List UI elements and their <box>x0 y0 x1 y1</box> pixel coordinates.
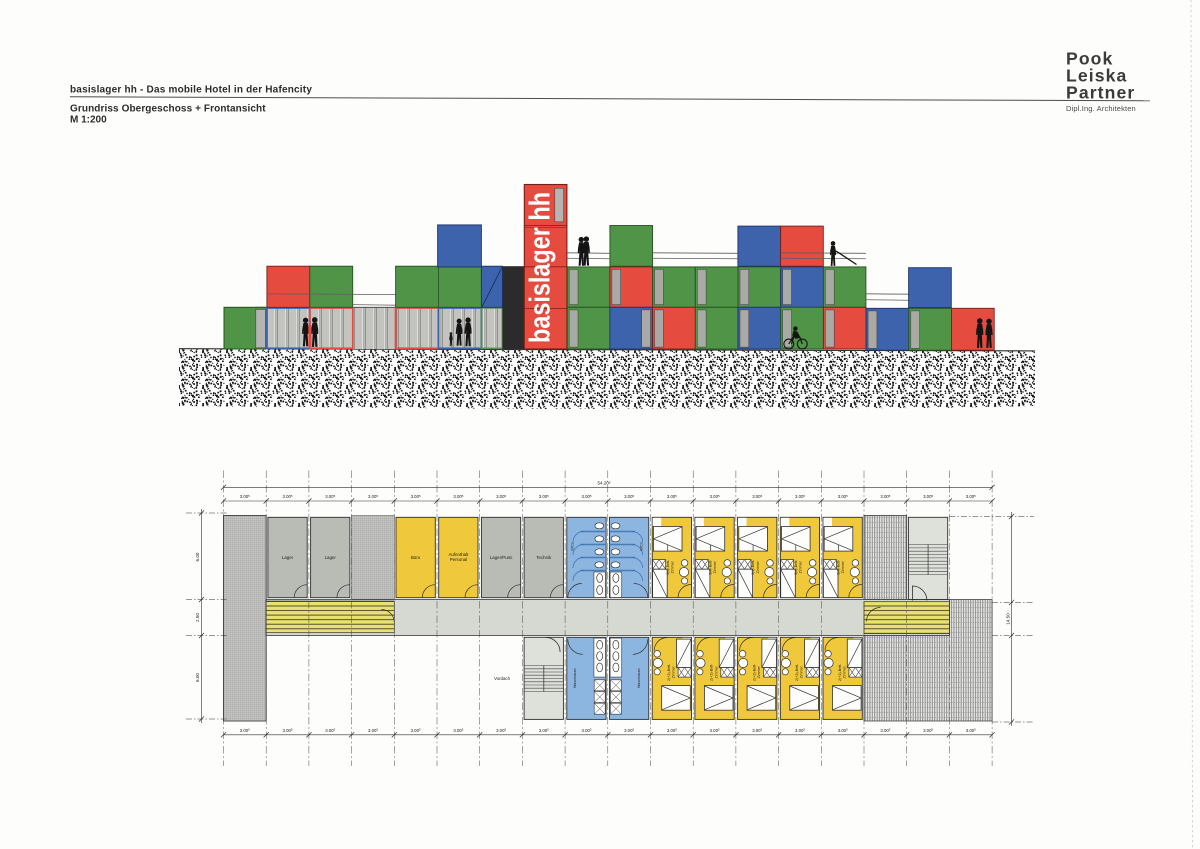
svg-text:3(4)-Bett-: 3(4)-Bett- <box>709 559 713 575</box>
svg-text:3(4)-Bett-: 3(4)-Bett- <box>794 559 798 575</box>
svg-text:WCs: WCs <box>569 542 574 551</box>
svg-text:M 1:200: M 1:200 <box>70 115 107 126</box>
svg-text:2(+2)-Bett-: 2(+2)-Bett- <box>667 663 671 681</box>
svg-text:Zimmer: Zimmer <box>842 665 846 678</box>
svg-text:Büro: Büro <box>411 555 421 560</box>
svg-text:Partner: Partner <box>1066 83 1135 103</box>
svg-text:2.50: 2.50 <box>195 613 200 622</box>
svg-text:Lager: Lager <box>282 555 294 560</box>
svg-text:2(+2)-Bett-: 2(+2)-Bett- <box>795 663 799 681</box>
svg-text:Zimmer: Zimmer <box>756 560 760 573</box>
svg-text:Lager/Pumi: Lager/Pumi <box>490 555 512 560</box>
svg-text:Zimmer: Zimmer <box>714 665 718 678</box>
svg-text:Grundriss Obergeschoss + Front: Grundriss Obergeschoss + Frontansicht <box>70 104 266 115</box>
svg-text:2(+2)-Bett-: 2(+2)-Bett- <box>752 663 756 681</box>
svg-text:3(4)-Bett-: 3(4)-Bett- <box>751 559 755 575</box>
svg-text:3(4)-Bett-: 3(4)-Bett- <box>837 559 841 575</box>
svg-text:Technik: Technik <box>536 555 552 560</box>
svg-text:Zimmer: Zimmer <box>757 665 761 678</box>
svg-text:6.00: 6.00 <box>195 552 200 561</box>
svg-text:Dipl.Ing. Architekten: Dipl.Ing. Architekten <box>1066 104 1136 113</box>
svg-text:Waschraum: Waschraum <box>637 669 641 689</box>
svg-text:2(+2)-Bett-: 2(+2)-Bett- <box>710 663 714 681</box>
svg-text:Vordach: Vordach <box>494 676 511 681</box>
svg-text:6.00: 6.00 <box>195 673 200 682</box>
svg-text:Zimmer: Zimmer <box>799 560 803 573</box>
svg-text:basislager hh - Das mobile Hot: basislager hh - Das mobile Hotel in der … <box>70 85 312 96</box>
svg-text:Zimmer: Zimmer <box>800 665 804 678</box>
svg-text:2(+2)-Bett-: 2(+2)-Bett- <box>838 663 842 681</box>
svg-text:Personal: Personal <box>450 557 467 562</box>
svg-text:14.50: 14.50 <box>1005 613 1010 625</box>
svg-text:Zimmer: Zimmer <box>670 560 674 573</box>
svg-text:Lager: Lager <box>325 555 337 560</box>
svg-text:Waschraum: Waschraum <box>573 669 577 689</box>
svg-text:basislager hh: basislager hh <box>525 192 557 343</box>
svg-text:Zimmer: Zimmer <box>841 560 845 573</box>
svg-text:3(4)-Bett-: 3(4)-Bett- <box>666 559 670 575</box>
svg-text:Zimmer: Zimmer <box>713 560 717 573</box>
svg-text:Zimmer: Zimmer <box>672 665 676 678</box>
svg-text:WCs: WCs <box>638 542 643 551</box>
